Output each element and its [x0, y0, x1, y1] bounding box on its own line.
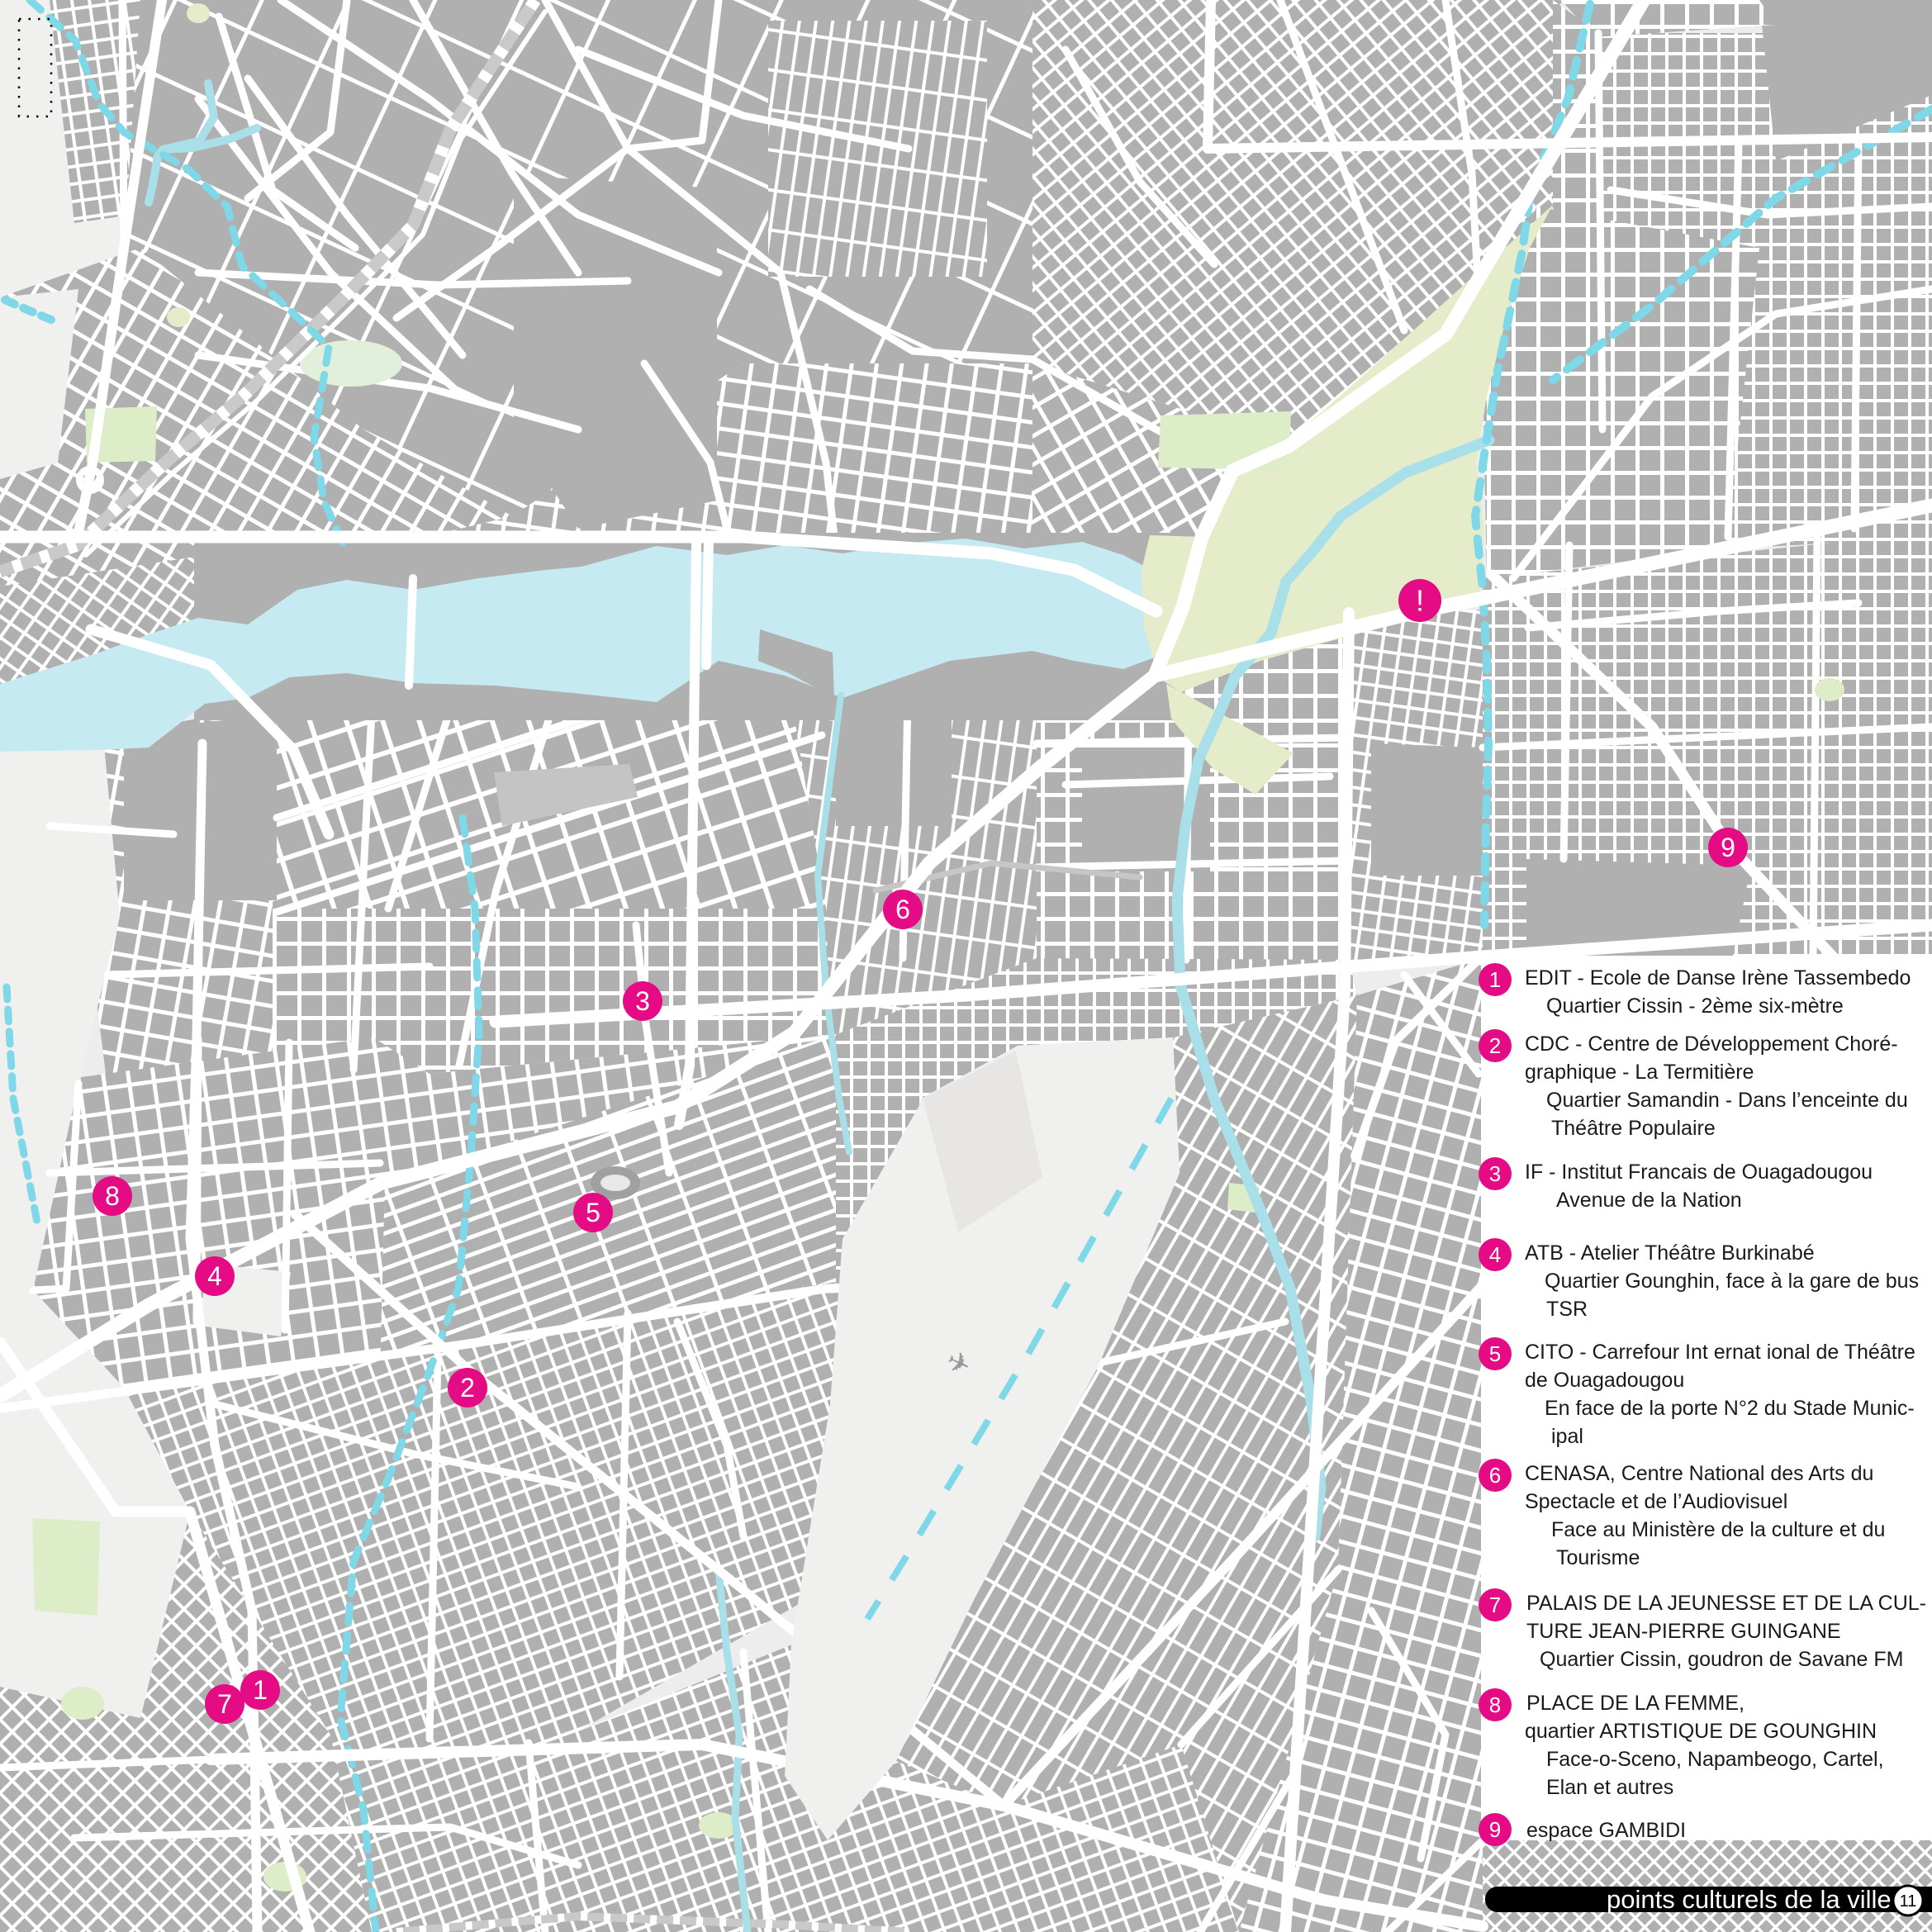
svg-text:TSR: TSR [1546, 1298, 1588, 1321]
svg-text:CITO - Carrefour Int ernat io: CITO - Carrefour Int ernat ional de Théâ… [1525, 1341, 1915, 1364]
svg-text:Elan et autres: Elan et autres [1546, 1776, 1673, 1799]
svg-text:En face de la porte N°2 du Sta: En face de la porte N°2 du Stade Munic- [1545, 1397, 1915, 1420]
svg-text:4: 4 [1489, 1242, 1501, 1267]
svg-text:Quartier Samandin - Dans l’enc: Quartier Samandin - Dans l’enceinte du [1546, 1089, 1908, 1112]
svg-text:Quartier Cissin, goudron de Sa: Quartier Cissin, goudron de Savane FM [1540, 1648, 1904, 1671]
svg-text:5: 5 [586, 1198, 600, 1227]
svg-text:6: 6 [1489, 1463, 1501, 1488]
svg-text:Avenue de la Nation: Avenue de la Nation [1556, 1189, 1742, 1212]
svg-text:ATB - Atelier Théâtre Burkinab: ATB - Atelier Théâtre Burkinabé [1525, 1241, 1815, 1265]
svg-text:IF - Institut Francais de Ouag: IF - Institut Francais de Ouagadougou [1525, 1161, 1873, 1184]
svg-text:1: 1 [1489, 967, 1501, 992]
svg-text:5: 5 [1489, 1341, 1501, 1366]
svg-text:9: 9 [1489, 1817, 1501, 1842]
svg-text:PALAIS DE LA JEUNESSE ET DE LA: PALAIS DE LA JEUNESSE ET DE LA CUL- [1526, 1592, 1926, 1615]
svg-text:espace GAMBIDI: espace GAMBIDI [1526, 1819, 1686, 1842]
svg-text:!: ! [1416, 584, 1424, 618]
svg-text:graphique - La Termitière: graphique - La Termitière [1525, 1061, 1754, 1084]
svg-text:8: 8 [1489, 1692, 1501, 1717]
svg-text:8: 8 [105, 1181, 120, 1211]
svg-text:2: 2 [460, 1373, 475, 1403]
svg-text:CDC - Centre de Développement: CDC - Centre de Développement Choré- [1525, 1032, 1898, 1056]
svg-text:6: 6 [895, 895, 910, 924]
svg-text:Quartier Cissin - 2ème six-mèt: Quartier Cissin - 2ème six-mètre [1546, 994, 1844, 1018]
svg-text:3: 3 [635, 986, 650, 1016]
svg-text:7: 7 [1489, 1593, 1501, 1617]
svg-text:3: 3 [1489, 1161, 1501, 1186]
svg-text:9: 9 [1721, 833, 1735, 862]
svg-text:Quartier Gounghin, face à la g: Quartier Gounghin, face à la gare de bus [1545, 1270, 1919, 1293]
svg-text:Spectacle et de l’Audiovisuel: Spectacle et de l’Audiovisuel [1525, 1490, 1787, 1513]
svg-text:4: 4 [207, 1261, 222, 1291]
svg-text:ipal: ipal [1551, 1425, 1583, 1448]
svg-text:quartier ARTISTIQUE DE GOUNGHI: quartier ARTISTIQUE DE GOUNGHIN [1525, 1720, 1877, 1743]
svg-text:EDIT - Ecole de Danse Irène Ta: EDIT - Ecole de Danse Irène Tassembedo [1525, 966, 1911, 990]
svg-text:de Ouagadougou: de Ouagadougou [1525, 1369, 1684, 1392]
svg-text:Face au Ministère de la cultur: Face au Ministère de la culture et du [1551, 1518, 1885, 1541]
svg-text:1: 1 [253, 1675, 268, 1705]
svg-text:2: 2 [1489, 1033, 1501, 1058]
svg-text:Théâtre Populaire: Théâtre Populaire [1551, 1117, 1716, 1140]
svg-text:PLACE DE LA FEMME,: PLACE DE LA FEMME, [1526, 1692, 1744, 1715]
svg-text:11: 11 [1900, 1892, 1917, 1911]
svg-text:Face-o-Sceno, Napambeogo, Cart: Face-o-Sceno, Napambeogo, Cartel, [1546, 1748, 1884, 1771]
svg-text:7: 7 [217, 1689, 232, 1719]
svg-text:CENASA, Centre National des Ar: CENASA, Centre National des Arts du [1525, 1462, 1873, 1485]
svg-text:points culturels de la ville: points culturels de la ville [1607, 1885, 1892, 1914]
svg-text:TURE JEAN-PIERRE GUINGANE: TURE JEAN-PIERRE GUINGANE [1526, 1620, 1841, 1643]
svg-text:Tourisme: Tourisme [1556, 1546, 1640, 1569]
